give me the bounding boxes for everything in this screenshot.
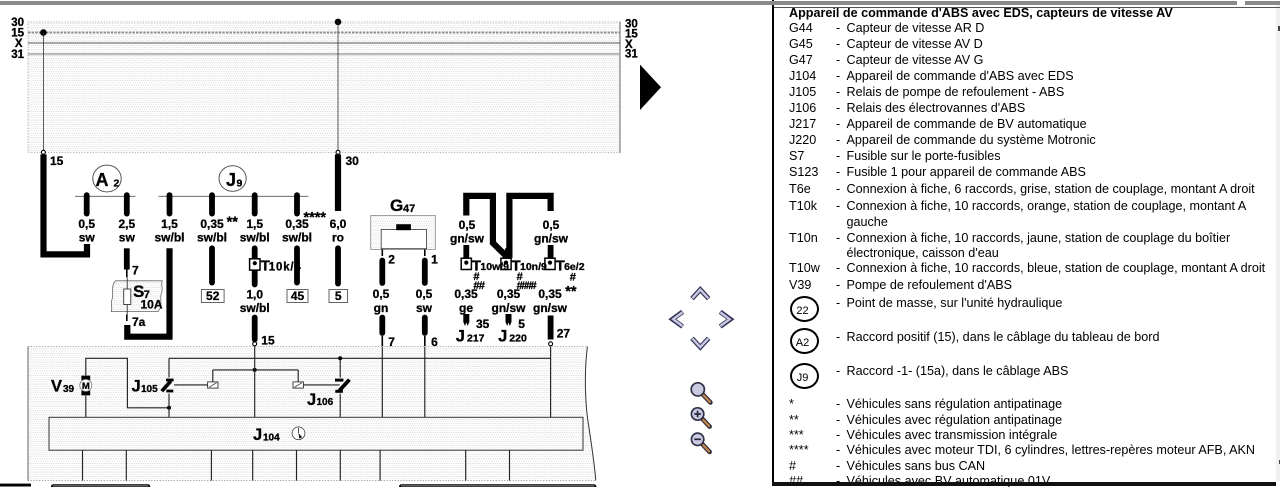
svg-text:2,5: 2,5: [118, 217, 135, 231]
svg-text:27: 27: [557, 327, 571, 341]
svg-text:gn/sw: gn/sw: [450, 231, 485, 245]
svg-text:G: G: [390, 196, 403, 215]
svg-text:30: 30: [346, 154, 360, 168]
svg-text:1: 1: [431, 253, 438, 267]
svg-text:J: J: [307, 391, 316, 409]
svg-text:J: J: [226, 170, 236, 190]
svg-text:gn: gn: [374, 301, 389, 315]
svg-text:1,0: 1,0: [246, 287, 263, 301]
svg-text:7: 7: [132, 263, 139, 277]
svg-text:106: 106: [317, 397, 334, 408]
svg-text:M: M: [82, 381, 90, 392]
svg-text:39: 39: [63, 384, 75, 395]
svg-text:47: 47: [403, 203, 415, 215]
svg-text:sw: sw: [416, 301, 433, 315]
svg-text:45: 45: [291, 289, 305, 303]
svg-text:ro: ro: [332, 230, 344, 244]
svg-text:J: J: [456, 327, 465, 345]
svg-text:**: **: [227, 215, 239, 231]
svg-text:5: 5: [518, 317, 525, 331]
svg-text:J: J: [498, 327, 507, 345]
svg-text:2: 2: [114, 178, 120, 190]
svg-text:0,5: 0,5: [373, 287, 390, 301]
svg-text:0,35: 0,35: [497, 287, 521, 301]
svg-text:0,35: 0,35: [538, 287, 562, 301]
svg-text:gn/sw: gn/sw: [491, 301, 526, 315]
svg-text:**: **: [565, 284, 577, 300]
svg-text:15: 15: [50, 154, 64, 168]
svg-text:104: 104: [263, 433, 280, 444]
svg-text:9: 9: [237, 178, 243, 190]
svg-text:7a: 7a: [132, 315, 146, 329]
svg-text:217: 217: [467, 333, 485, 345]
svg-text:0,35: 0,35: [454, 287, 478, 301]
svg-text:5: 5: [335, 289, 342, 303]
svg-text:6,0: 6,0: [330, 217, 347, 231]
svg-text:sw: sw: [79, 230, 96, 244]
svg-text:sw/bl: sw/bl: [240, 301, 270, 315]
svg-text:31: 31: [11, 49, 24, 61]
svg-text:sw/bl: sw/bl: [154, 230, 184, 244]
svg-text:0,5: 0,5: [416, 287, 433, 301]
svg-text:10A: 10A: [141, 297, 163, 311]
svg-text:1,5: 1,5: [246, 217, 263, 231]
svg-text:0,5: 0,5: [78, 217, 95, 231]
svg-text:gn/sw: gn/sw: [533, 301, 568, 315]
svg-text:10w/9: 10w/9: [480, 261, 509, 273]
svg-text:0,5: 0,5: [543, 218, 560, 232]
svg-text:sw/bl: sw/bl: [240, 230, 270, 244]
svg-text:35: 35: [476, 317, 490, 331]
svg-text:sw: sw: [119, 230, 136, 244]
svg-text:0,35: 0,35: [200, 217, 224, 231]
svg-text:52: 52: [206, 289, 220, 303]
svg-text:0,35: 0,35: [285, 217, 309, 231]
svg-text:gn/sw: gn/sw: [534, 231, 569, 245]
svg-text:1,5: 1,5: [161, 217, 178, 231]
svg-text:ge: ge: [459, 301, 473, 315]
svg-text:sw/bl: sw/bl: [197, 230, 227, 244]
svg-text:105: 105: [141, 384, 158, 395]
svg-text:J: J: [253, 426, 262, 444]
svg-text:#: #: [570, 272, 576, 284]
svg-text:A: A: [96, 170, 109, 190]
svg-text:0,5: 0,5: [459, 218, 476, 232]
svg-text:sw/bl: sw/bl: [282, 230, 312, 244]
svg-text:2: 2: [388, 253, 395, 267]
svg-text:31: 31: [625, 49, 638, 61]
svg-text:J: J: [132, 378, 141, 396]
svg-text:15: 15: [261, 334, 275, 348]
svg-text:10n/9: 10n/9: [520, 261, 547, 273]
svg-text:V: V: [51, 378, 62, 396]
svg-text:220: 220: [509, 333, 527, 345]
